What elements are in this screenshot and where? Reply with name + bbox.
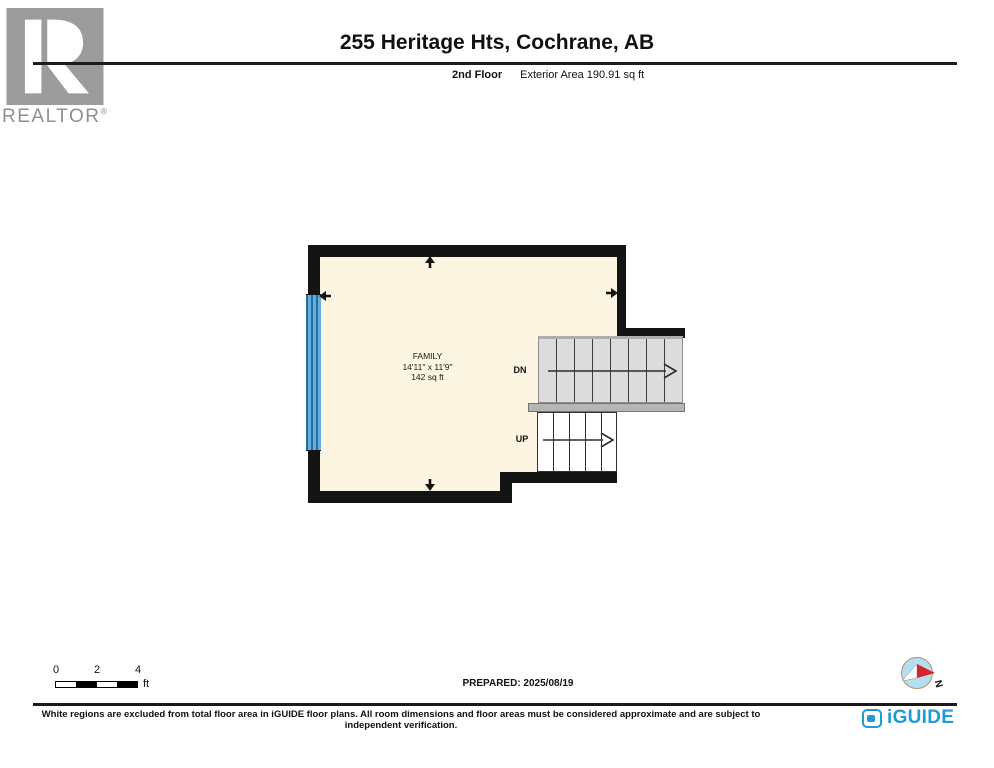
iguide-wordmark: iGUIDE	[887, 707, 954, 729]
prepared-date: PREPARED: 2025/08/19	[418, 678, 618, 689]
wall-bottom-left	[308, 491, 512, 503]
stair-up-label: UP	[507, 434, 537, 444]
page-title: 255 Heritage Hts, Cochrane, AB	[0, 31, 994, 55]
opening-arrow-left-icon	[319, 290, 331, 302]
iguide-icon-dot	[867, 715, 875, 722]
room-name: FAMILY	[360, 351, 495, 362]
scale-segment	[76, 682, 96, 687]
room-label: FAMILY 14'11" x 11'9" 142 sq ft	[360, 351, 495, 383]
wall-right	[617, 245, 626, 338]
room-dimensions: 14'11" x 11'9"	[360, 362, 495, 373]
disclaimer-text: White regions are excluded from total fl…	[35, 709, 767, 731]
scale-bar	[55, 681, 138, 688]
stair-up-direction-arrow	[543, 431, 617, 449]
scale-bar-ticks: 0 2 4	[49, 664, 145, 676]
scale-segment	[97, 682, 117, 687]
scale-segment	[117, 682, 137, 687]
floor-plan-page: REALTOR® 255 Heritage Hts, Cochrane, AB …	[0, 0, 994, 768]
iguide-icon	[862, 709, 882, 728]
scale-unit-label: ft	[143, 678, 149, 690]
exterior-area-label: Exterior Area 190.91 sq ft	[520, 69, 644, 81]
stair-landing	[528, 403, 685, 412]
stair-down-direction-arrow	[548, 362, 678, 380]
realtor-logo-icon	[6, 8, 104, 105]
header-divider	[33, 62, 957, 65]
room-area: 142 sq ft	[360, 372, 495, 383]
scale-tick: 0	[49, 664, 63, 676]
wall-bottom-right	[500, 472, 617, 483]
stair-down-label: DN	[505, 365, 535, 375]
opening-arrow-bottom-icon	[424, 479, 436, 491]
footer-divider	[33, 703, 957, 706]
compass-icon: N	[896, 652, 952, 694]
wall-top	[308, 245, 626, 257]
opening-arrow-right-icon	[606, 287, 618, 299]
floor-label: 2nd Floor	[452, 69, 502, 81]
scale-segment	[56, 682, 76, 687]
window	[306, 294, 321, 451]
north-label: N	[932, 679, 944, 689]
iguide-logo: iGUIDE	[862, 707, 954, 729]
realtor-wordmark: REALTOR®	[2, 106, 132, 128]
floor-subtitle: 2nd Floor Exterior Area 190.91 sq ft	[452, 69, 644, 81]
scale-tick: 2	[90, 664, 104, 676]
registered-mark: ®	[101, 107, 109, 117]
scale-tick: 4	[131, 664, 145, 676]
opening-arrow-top-icon	[424, 256, 436, 268]
